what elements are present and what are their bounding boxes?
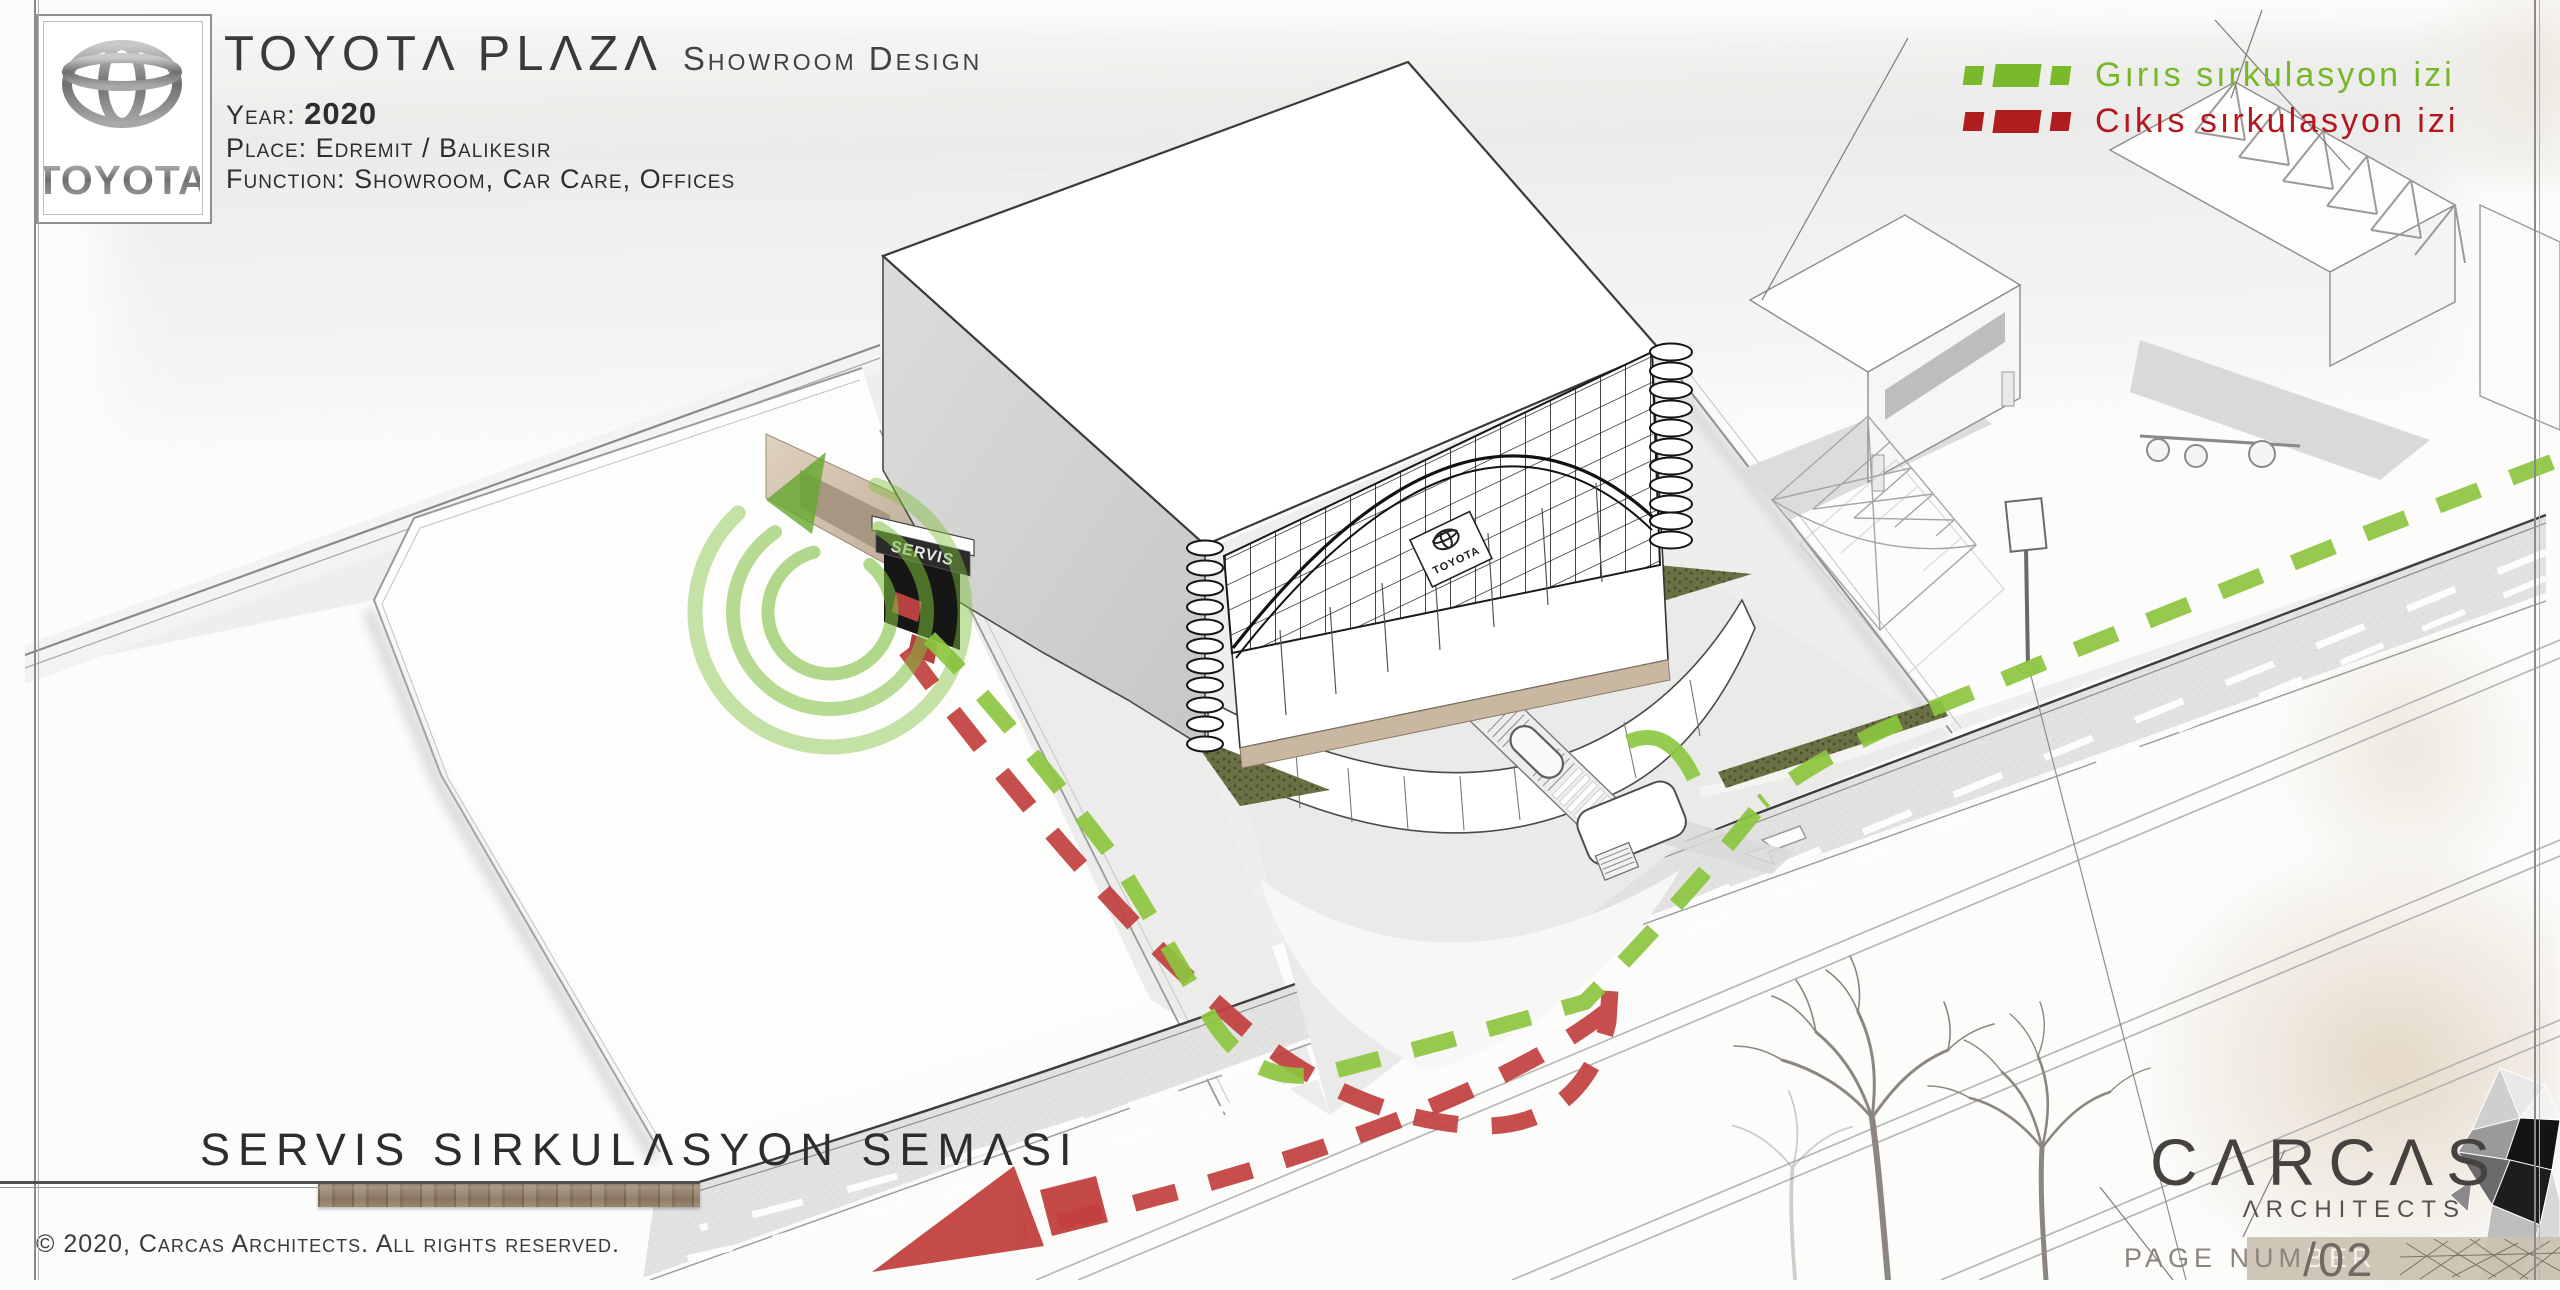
legend-exit-row: Cıkıs sırkulasyon izi (1964, 102, 2458, 141)
year-value: 2020 (304, 96, 377, 131)
tree-3-faint (1733, 1091, 1852, 1279)
entry-dash-small-2 (2050, 66, 2072, 85)
exit-dash-small-1 (1963, 112, 1985, 131)
legend-exit-label: Cıkıs sırkulasyon izi (2095, 102, 2458, 141)
aux-building-2 (2110, 82, 2465, 480)
aux2-shadow (2130, 340, 2430, 480)
meta-function: Function: Showroom, Car Care, Offices (226, 164, 735, 195)
meta-place: Place: Edremit / Balikesir (226, 133, 552, 164)
firm-subtitle: ΛRCHITECTS (2150, 1196, 2466, 1224)
firm-name: CΛRCΛS (2150, 1124, 2470, 1200)
title-main: TOYOTΛ PLΛZΛ (224, 26, 663, 82)
logo-wordmark: TOYOTA (44, 157, 200, 203)
wood-texture-bar (318, 1181, 700, 1207)
exit-dash-large (1992, 110, 2041, 133)
toyota-logo-box: TOYOTA (36, 14, 212, 224)
ring-column-right (1650, 344, 1692, 549)
hatch-scribble (2400, 1237, 2560, 1280)
legend-entry-row: Gırıs sırkulasyon izi (1964, 56, 2455, 95)
toyota-logo-icon: TOYOTA (44, 22, 200, 212)
right-frame-line (2534, 0, 2536, 1280)
meta-year: Year: 2020 (226, 96, 377, 132)
page-label-dark: PAGE NUM (2124, 1243, 2306, 1273)
tree-1 (1734, 956, 1994, 1280)
logo-box-inner-border: TOYOTA (43, 21, 203, 215)
wood-grain (318, 1181, 700, 1207)
entry-dash-large (1992, 64, 2041, 87)
project-title: TOYOTΛ PLΛZΛ Showroom Design (224, 26, 982, 82)
bare-trees (1733, 956, 2150, 1280)
function-label: Function: (226, 164, 346, 194)
copyright-text: © 2020, Carcas Architects. All rights re… (36, 1230, 620, 1259)
right-frame-line-2 (2539, 0, 2540, 1280)
page-number-value: /02 (2303, 1232, 2374, 1287)
entry-dash-small-1 (1963, 66, 1985, 85)
function-value: Showroom, Car Care, Offices (354, 164, 735, 194)
footer-rule (0, 1181, 700, 1184)
footer-rule-2 (0, 1187, 700, 1188)
place-value: Edremit / Balikesir (316, 133, 552, 163)
place-label: Place: (226, 133, 307, 163)
right-edge-slab (2480, 205, 2560, 430)
exit-dash-small-2 (2050, 112, 2072, 131)
left-frame-line-2 (38, 0, 39, 1280)
title-sub: Showroom Design (683, 40, 982, 78)
ring-column-front (1187, 541, 1223, 752)
drawing-title: SERVIS SIRKULΛSYON SEMΛSI (200, 1124, 1079, 1176)
year-label: Year: (226, 100, 296, 130)
legend-entry-label: Gırıs sırkulasyon izi (2095, 56, 2455, 95)
left-frame-line (34, 0, 36, 1280)
